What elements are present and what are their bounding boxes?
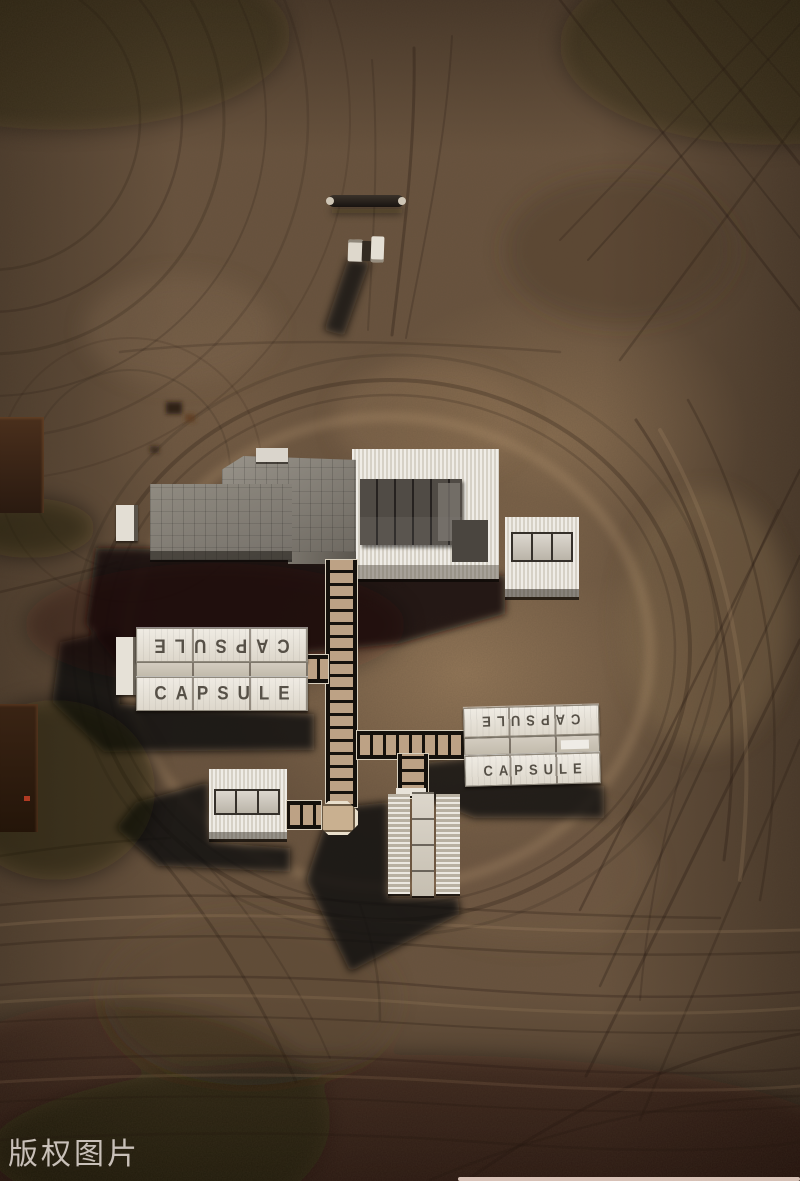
rust-plate-south (0, 704, 38, 832)
capsule-module-west: CAPSULE CAPSULE (110, 620, 320, 725)
south-wing-west-band (388, 794, 410, 894)
panel-cell (513, 534, 531, 560)
barrier-end-cap-left (326, 197, 334, 205)
roof-vent-box (256, 448, 288, 462)
southwest-panel-row (214, 789, 280, 815)
panel-cell (533, 534, 551, 560)
corridor-spine (326, 560, 357, 807)
capsule-west-bottom-row: CAPSULE (136, 677, 308, 711)
gray-roof-west (150, 484, 292, 560)
module-southwest (209, 769, 287, 839)
barrier-end-cap-right (398, 197, 406, 205)
solar-panel-array (360, 479, 462, 545)
southwest-shade (209, 832, 287, 839)
vehicle-body-right (371, 236, 385, 262)
capsule-east-door-tag (561, 740, 589, 750)
capsule-module-east: CAPSULE CAPSULE (459, 698, 611, 797)
west-roof-eave-shade (150, 551, 292, 560)
aerial-photo-canvas: CAPSULE CAPSULE CAPSULE CAPSULE (0, 0, 800, 1181)
corridor-junction-octagon (318, 801, 358, 835)
east-annex-panel-row (511, 532, 573, 562)
white-hall-south-shade (352, 565, 499, 579)
capsule-label: CAPSULE (137, 676, 307, 712)
panel-cell (216, 791, 235, 813)
panel-cell (237, 791, 256, 813)
east-annex-shade (505, 589, 579, 597)
panel-cell (259, 791, 278, 813)
capsule-west-side-unit (116, 637, 136, 695)
south-wing-east-band (436, 794, 460, 894)
watermark: 版权图片 (8, 1129, 140, 1173)
panel-cell (553, 534, 571, 560)
capsule-label: CAPSULE (464, 704, 599, 739)
capsule-label: CAPSULE (465, 752, 600, 788)
capsule-west-top-row: CAPSULE (136, 628, 308, 662)
capsule-label: CAPSULE (137, 627, 307, 663)
vehicle (348, 235, 387, 264)
capsule-west-mid-band (136, 662, 308, 677)
building-south-wing (388, 788, 460, 896)
east-annex-module (505, 517, 579, 597)
south-wing-center-spine (412, 792, 434, 896)
top-barrier-bar (328, 195, 404, 207)
capsule-east-top-row: CAPSULE (463, 704, 600, 738)
capsule-east-bottom-row: CAPSULE (464, 752, 601, 787)
rust-plate-north (0, 417, 44, 513)
west-annex-unit (116, 505, 138, 541)
bottom-edge-strip (458, 1177, 800, 1181)
red-marker-dot (24, 796, 30, 801)
corridor-southwest-link (287, 801, 321, 829)
dark-roof-extension (452, 520, 488, 562)
